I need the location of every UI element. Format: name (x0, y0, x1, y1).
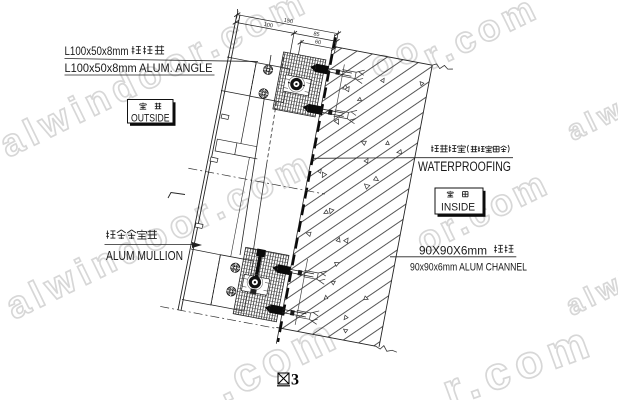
svg-text:85: 85 (313, 31, 320, 38)
svg-text:60: 60 (314, 39, 321, 46)
svg-text:INSIDE: INSIDE (441, 202, 475, 214)
svg-text:ALUM MULLION: ALUM MULLION (106, 248, 183, 263)
svg-text:L100x50x8mm ALUM. ANGLE: L100x50x8mm ALUM. ANGLE (65, 61, 213, 75)
svg-text:L100x50x8mm: L100x50x8mm (65, 46, 129, 58)
svg-text:OUTSIDE: OUTSIDE (131, 112, 170, 124)
svg-text:90X90X6mm: 90X90X6mm (419, 244, 487, 258)
svg-text:WATERPROOFING: WATERPROOFING (418, 159, 511, 174)
svg-text:3: 3 (291, 372, 299, 389)
svg-text:90x90x6mm ALUM CHANNEL: 90x90x6mm ALUM CHANNEL (410, 262, 527, 274)
